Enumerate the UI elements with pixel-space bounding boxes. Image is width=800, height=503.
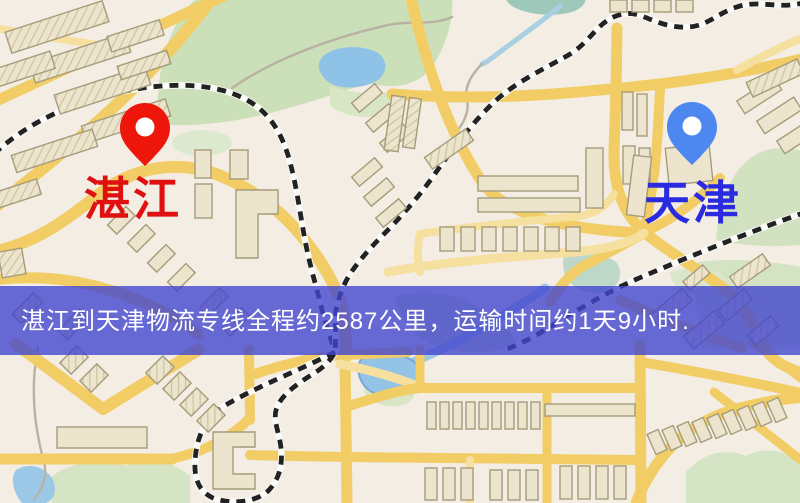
destination-label: 天津 (644, 180, 742, 226)
origin-label: 湛江 (84, 176, 182, 222)
map-view[interactable]: 湛江 天津 湛江到天津物流专线全程约2587公里，运输时间约1天9小时. (0, 0, 800, 503)
map-canvas (0, 0, 800, 503)
lake (319, 47, 386, 87)
route-info-banner: 湛江到天津物流专线全程约2587公里，运输时间约1天9小时. (0, 286, 800, 355)
route-info-text: 湛江到天津物流专线全程约2587公里，运输时间约1天9小时. (0, 301, 690, 340)
